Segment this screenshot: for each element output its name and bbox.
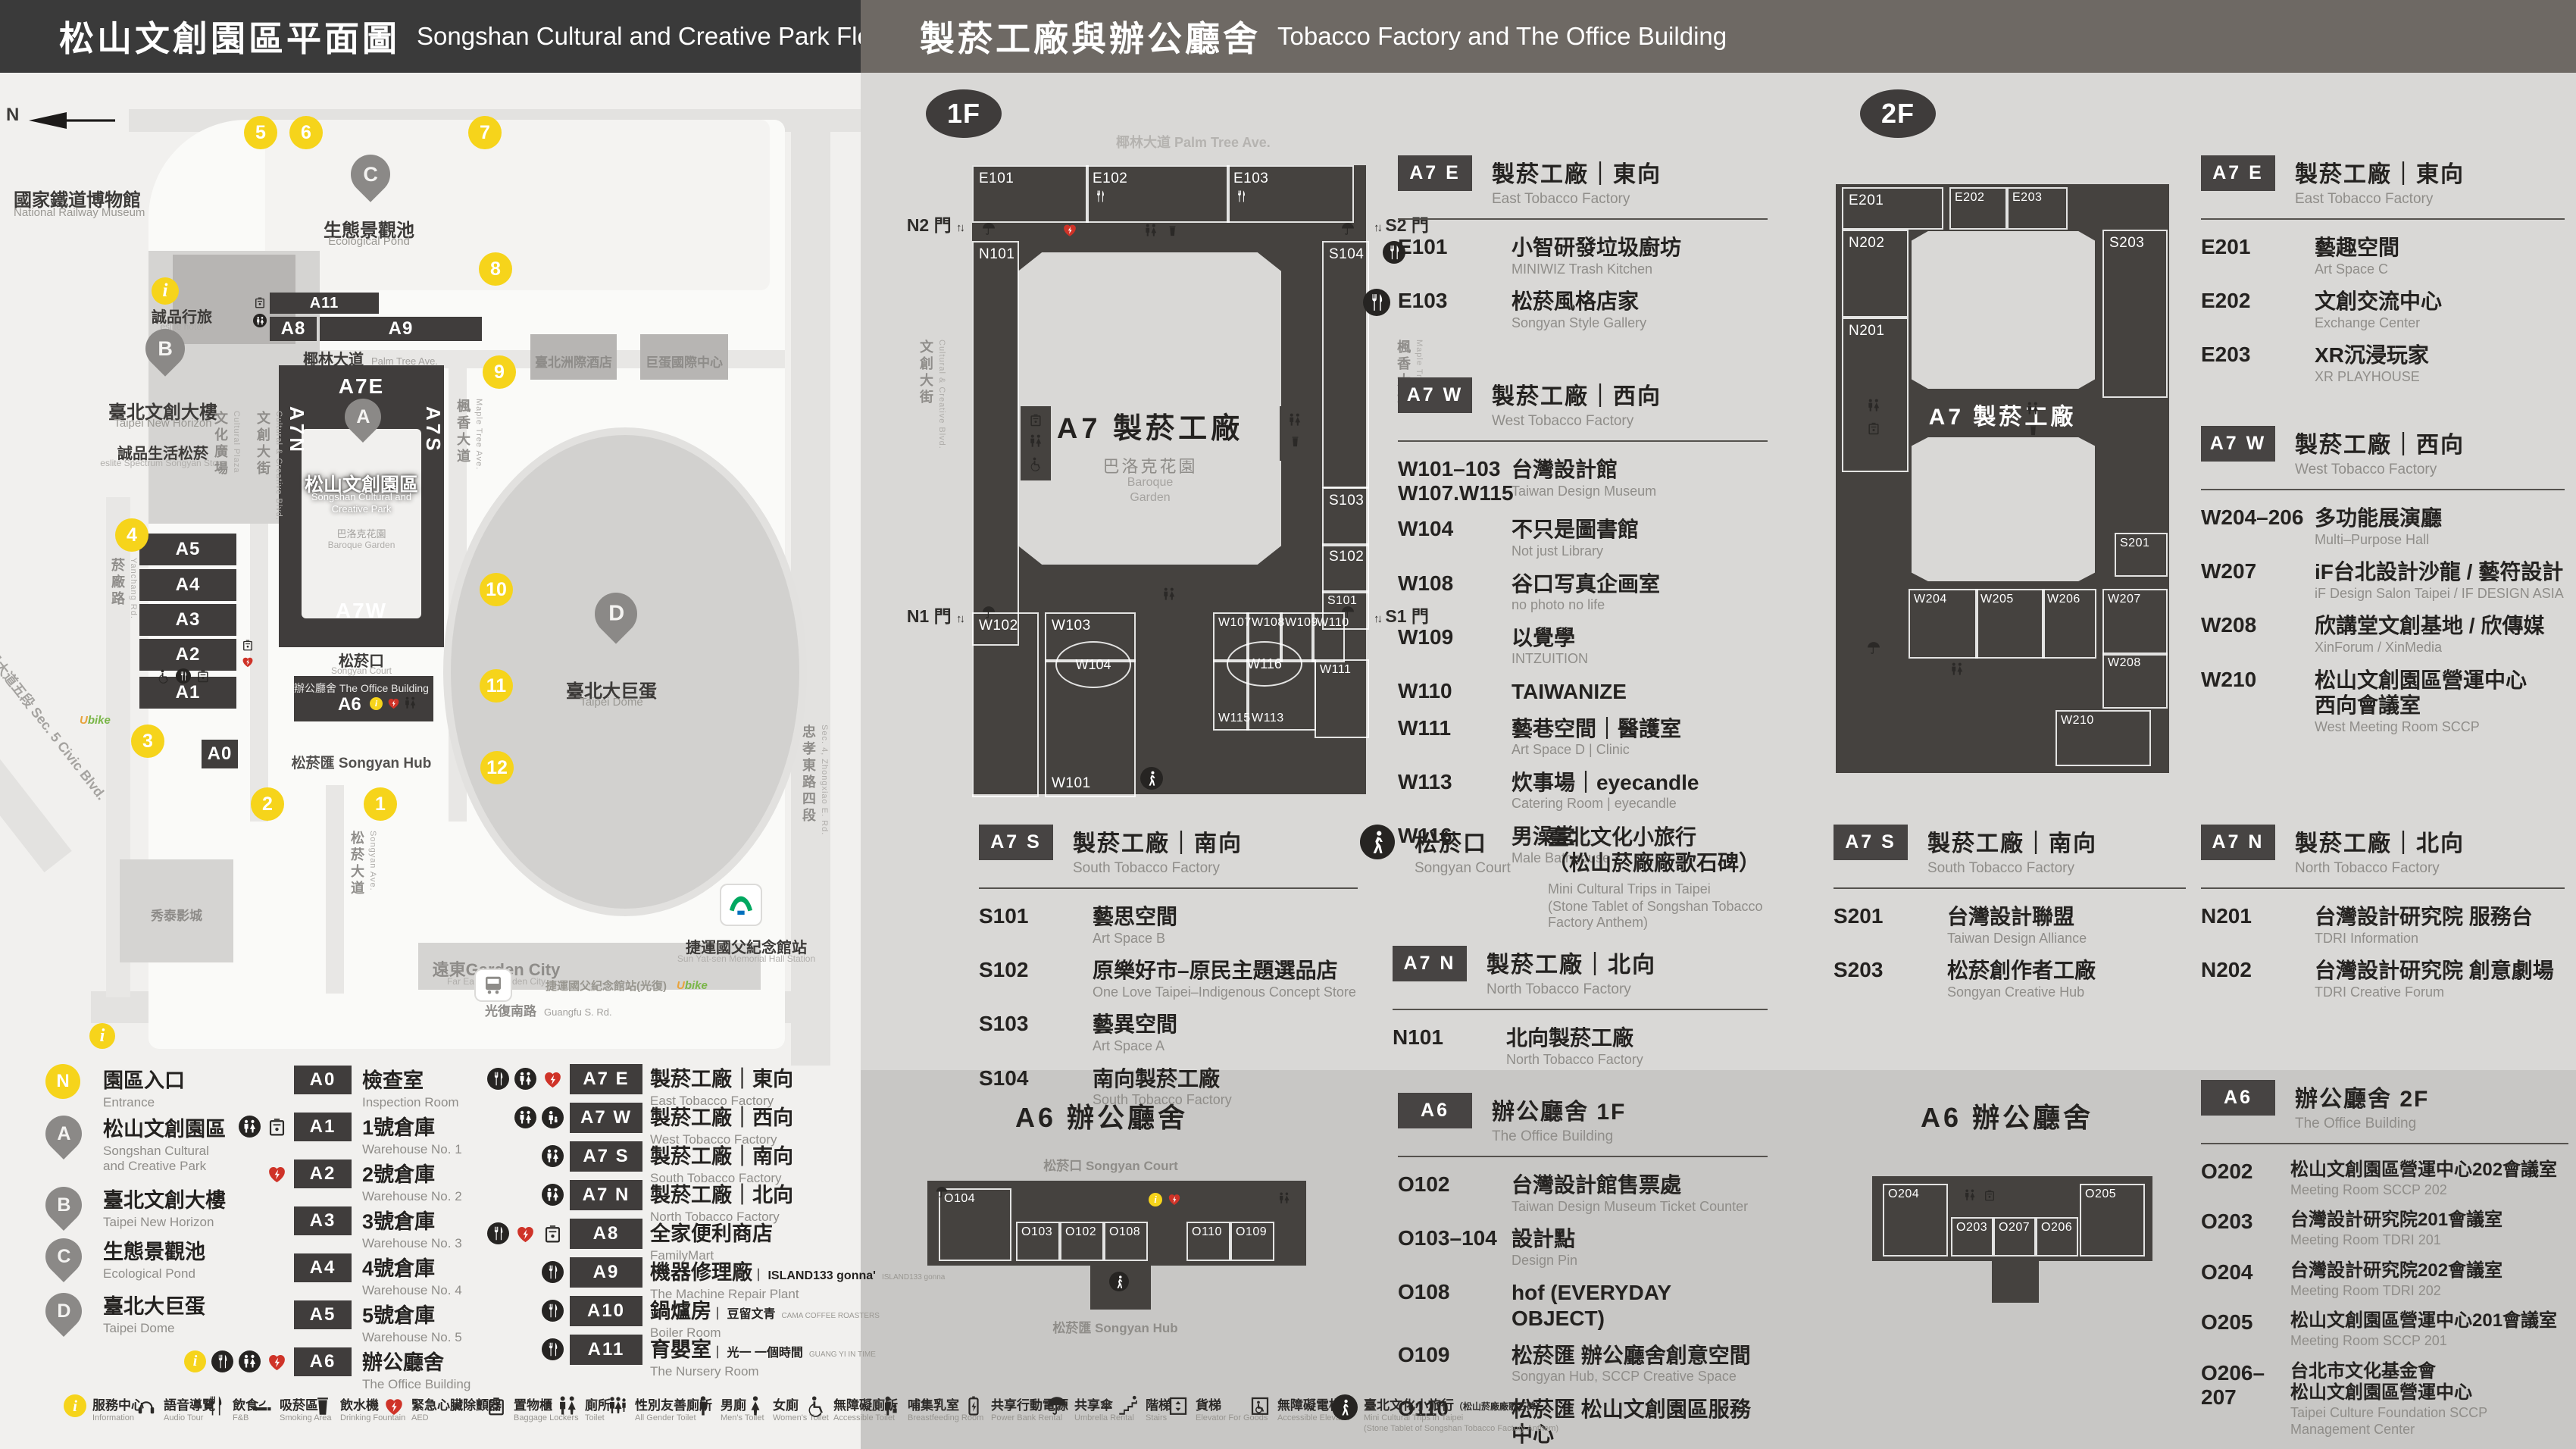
room-label: E101	[979, 171, 1014, 187]
gate-label: N1 門 ↑↓	[893, 602, 963, 627]
section-title-en: The Office Building	[2295, 1116, 2429, 1132]
room-w102: W102	[972, 612, 1039, 797]
pair-icon	[1277, 1191, 1291, 1205]
map-marker-8: 8	[479, 252, 512, 286]
legend-pin-icon: A	[38, 1108, 89, 1160]
section-badge: A6	[2201, 1080, 2275, 1116]
map-label: A6	[338, 694, 361, 715]
gate-text: N1 門	[907, 606, 956, 626]
legend-badge: A11	[570, 1335, 642, 1365]
entry-code: E203	[2201, 343, 2315, 385]
directory-entry-o102: O102台灣設計館售票處Taiwan Design Museum Ticket …	[1398, 1172, 1768, 1215]
map-street-vertical: 菸廠路Yanchang Rd.	[108, 558, 138, 619]
map-street-label: 椰林大道Palm Tree Ave.	[303, 347, 438, 369]
directory-entry-n201: N201台灣設計研究院 服務台TDRI Information	[2201, 904, 2565, 947]
legend-building-text: 4號倉庫Warehouse No. 4	[362, 1252, 462, 1298]
entry-code: O202	[2201, 1160, 2290, 1198]
room-n101: N101	[972, 241, 1019, 646]
entry-text: 松山文創園區營運中心202會議室Meeting Room SCCP 202	[2290, 1160, 2557, 1198]
locker-icon	[1983, 1188, 1996, 1202]
entry-code: O109	[1398, 1343, 1512, 1385]
entry-code: N101	[1393, 1025, 1506, 1068]
directory-section-a7e-0: A7 E製菸工廠｜東向East Tobacco FactoryE101小智研發垃…	[1398, 155, 1768, 343]
pair-icon	[514, 1068, 536, 1090]
entry-zh: 台灣設計研究院202會議室	[2290, 1260, 2503, 1282]
entry-zh: iF台北設計沙龍 / 藝符設計	[2315, 559, 2564, 585]
locker-icon	[1866, 421, 1881, 436]
court-title-en: Songyan Court	[1415, 860, 1528, 877]
room-e201: E201	[1842, 187, 1943, 230]
section-title-zh: 辦公廳舍 1F	[1492, 1093, 1626, 1126]
map-label: 捷運國父紀念館站(光復)	[546, 978, 667, 994]
entry-code: W109	[1398, 625, 1512, 668]
entry-text: 以覺學INTZUITION	[1512, 625, 1588, 668]
legend-building-text: 1號倉庫Warehouse No. 1	[362, 1111, 462, 1157]
directory-entry-w113: W113炊事場｜eyecandleCatering Room | eyecand…	[1398, 770, 1768, 812]
legend-pin-text: 臺北文創大樓Taipei New Horizon	[103, 1184, 226, 1230]
right-header: 製菸工廠與辦公廳舍 Tobacco Factory and The Office…	[861, 0, 2576, 73]
entry-zh: 台灣設計館售票處	[1512, 1172, 1748, 1198]
plan-street-label: 椰林大道 Palm Tree Ave.	[1116, 132, 1271, 152]
map-label: A7W	[336, 599, 387, 623]
room-s201: S201	[2115, 533, 2168, 577]
entry-text: 台灣設計研究院 服務台TDRI Information	[2315, 904, 2533, 947]
room-o204: O204	[1883, 1184, 1948, 1257]
plan-pa62f: A6 辦公廳舍O204O205O203O207O206	[1872, 1091, 2152, 1319]
legend-badge: A7 W	[570, 1103, 642, 1133]
directory-section-court-3: 松菸口Songyan Court臺北文化小旅行（松山菸廠廠歌石碑）Mini Cu…	[1360, 825, 1773, 931]
section-divider	[2201, 218, 2565, 220]
street-en: Cultural & Creative Blvd.	[937, 340, 946, 449]
directory-section-a7e-6: A7 E製菸工廠｜東向East Tobacco FactoryE201藝趣空間A…	[2201, 155, 2565, 397]
entry-zh: 北向製菸工廠	[1506, 1025, 1643, 1051]
ubike-logo: Ubike	[677, 979, 708, 992]
entry-text: TAIWANIZE	[1512, 679, 1627, 705]
pair-icon	[239, 1350, 261, 1372]
entry-zh: 藝趣空間	[2315, 235, 2399, 261]
room-o206: O206	[2036, 1217, 2078, 1257]
entry-zh: TAIWANIZE	[1512, 679, 1627, 705]
entry-zh: 台灣設計研究院 創意劇場	[2315, 958, 2554, 984]
section-title-en: South Tobacco Factory	[1073, 860, 1243, 877]
section-title-zh: 製菸工廠｜西向	[2295, 426, 2465, 459]
directory-entry-e202: E202文創交流中心Exchange Center	[2201, 289, 2565, 331]
section-divider	[1398, 440, 1768, 442]
room-e102: E102	[1086, 165, 1230, 223]
section-title: 製菸工廠｜北向North Tobacco Factory	[1487, 946, 1656, 998]
section-title: 製菸工廠｜西向West Tobacco Factory	[1492, 377, 1662, 430]
room-label: O103	[1021, 1225, 1052, 1239]
locker-icon	[195, 668, 211, 684]
entry-zh: 臺北文化小旅行	[1548, 825, 1773, 850]
legend-zh: 生態景觀池	[103, 1235, 205, 1265]
acclift-icon	[1249, 1394, 1271, 1417]
map-label: 辦公廳舍 The Office Building	[294, 681, 429, 696]
legend-zh: 1號倉庫	[362, 1111, 462, 1141]
legend-pin-icon: D	[38, 1285, 89, 1337]
entry-en: no photo no life	[1512, 597, 1660, 614]
room-label: O207	[1999, 1221, 2030, 1235]
gate-label: N2 門 ↑↓	[893, 211, 963, 236]
section-title-en: South Tobacco Factory	[1927, 860, 2097, 877]
entry-text: 松山文創園區營運中心西向會議室West Meeting Room SCCP	[2315, 668, 2527, 736]
map-building-a2: A2	[139, 639, 236, 671]
entry-zh: 松菸創作者工廠	[1947, 958, 2096, 984]
water-icon	[2027, 424, 2040, 437]
pin-letter: A	[356, 406, 370, 428]
room-w208: W208	[2102, 653, 2168, 709]
street-zh: 文創大街	[916, 340, 936, 449]
entry-en: MINIWIZ Trash Kitchen	[1512, 261, 1681, 278]
section-header: A7 N製菸工廠｜北向North Tobacco Factory	[2201, 825, 2565, 877]
fnb-icon	[487, 1068, 509, 1090]
legend-zh: 臺北文創大樓	[103, 1184, 226, 1213]
legend-row-icons	[482, 1068, 564, 1090]
directory-entry-e201: E201藝趣空間Art Space C	[2201, 235, 2565, 277]
entry-en: Exchange Center	[2315, 315, 2442, 332]
entry-en: iF Design Salon Taipei / IF DESIGN ASIA	[2315, 586, 2564, 602]
walk-icon	[1109, 1272, 1129, 1291]
legend-zh: 松山文創園區	[103, 1113, 226, 1142]
section-title-en: North Tobacco Factory	[2295, 860, 2465, 877]
umbrella-icon	[1866, 640, 1881, 656]
plan-label: 松菸匯 Songyan Hub	[1052, 1317, 1177, 1336]
legend-zh: 臺北大巨蛋	[103, 1290, 205, 1319]
locker-icon	[1028, 412, 1043, 427]
section-header: A7 E製菸工廠｜東向East Tobacco Factory	[1398, 155, 1768, 208]
entry-zh: 欣講堂文創基地 / 欣傳媒	[2315, 613, 2544, 639]
entry-code: W210	[2201, 668, 2315, 736]
room-e202: E202	[1949, 187, 2007, 230]
room-w210: W210	[2055, 710, 2151, 766]
room-w207: W207	[2102, 589, 2168, 656]
facility-en2: (Stone Tablet of Songshan Tobacco Factor…	[1364, 1424, 1558, 1435]
directory-entry-s103: S103藝異空間Art Space A	[979, 1012, 1358, 1054]
wheelchair-icon	[805, 1394, 827, 1417]
entry-en: Not just Library	[1512, 543, 1639, 560]
legend-zh: 3號倉庫	[362, 1205, 462, 1235]
entry-code: E201	[2201, 235, 2315, 277]
mrt-logo-icon	[721, 885, 761, 925]
map-building-a11: A11	[270, 293, 379, 314]
entry-en: South Tobacco Factory	[1093, 1092, 1232, 1109]
map-label: 秀泰影城	[151, 905, 202, 924]
pair-icon	[514, 1106, 536, 1128]
directory-section-a7s-2: A7 S製菸工廠｜南向South Tobacco FactoryS101藝思空間…	[979, 825, 1358, 1120]
room-o109: O109	[1230, 1222, 1274, 1261]
entry-text: 原樂好市–原民主題選品店One Love Taipei–Indigenous C…	[1093, 958, 1356, 1000]
map-building-a5: A5	[139, 534, 236, 565]
legend-brand-sub: GUANG YI IN TIME	[809, 1350, 876, 1359]
entry-en: Songyan Style Gallery	[1512, 315, 1646, 332]
aed-icon	[383, 1394, 405, 1417]
aed-icon	[1061, 221, 1078, 238]
umbrella-icon	[981, 221, 996, 236]
room-label: O206	[2041, 1221, 2072, 1235]
entry-text: 台灣設計研究院201會議室Meeting Room TDRI 201	[2290, 1210, 2503, 1248]
section-title-zh: 製菸工廠｜北向	[1487, 946, 1656, 979]
legend-row-icons	[536, 1145, 564, 1167]
map-street-vertical: 文創大街Cultural & Creative Blvd.	[253, 411, 283, 521]
plan-courtyard	[1912, 231, 2095, 389]
entry-zh2: （松山菸廠廠歌石碑）	[1548, 850, 1773, 876]
directory-section-a7n-9: A7 N製菸工廠｜北向North Tobacco FactoryN201台灣設計…	[2201, 825, 2565, 1012]
map-label: 松菸匯 Songyan Hub	[292, 752, 432, 772]
directory-entry-w204-206: W204–206多功能展演廳Multi–Purpose Hall	[2201, 505, 2565, 548]
directory-entry-s203: S203松菸創作者工廠Songyan Creative Hub	[1834, 958, 2186, 1000]
legend-pin-text: 生態景觀池Ecological Pond	[103, 1235, 205, 1282]
street-en: Yanchang Rd.	[129, 558, 138, 619]
legend-zh: 2號倉庫	[362, 1158, 462, 1188]
plan-label: Garden	[1130, 491, 1170, 505]
map-label: 臺北洲際酒店	[535, 352, 612, 371]
fnb-icon	[204, 1394, 227, 1417]
map-marker-4: 4	[115, 518, 148, 552]
map-marker-3: 3	[131, 724, 164, 758]
entry-code: E202	[2201, 289, 2315, 331]
map-label: A7E	[339, 374, 384, 399]
legend-badge: A7 N	[570, 1180, 642, 1210]
audio-icon	[135, 1394, 158, 1417]
directory-entry-o103-104: O103–104設計點Design Pin	[1398, 1226, 1768, 1269]
entry-code: S102	[979, 958, 1093, 1000]
plan-p2f: E201E202E203N202N201S203A7 製菸工廠S201W204W…	[1836, 171, 2169, 777]
room-o207: O207	[1993, 1217, 2036, 1257]
legend-row-icons	[536, 1300, 564, 1322]
info-icon: i	[184, 1350, 206, 1372]
section-title: 製菸工廠｜東向East Tobacco Factory	[1492, 155, 1662, 208]
entry-zh: 藝巷空間｜醫護室	[1512, 716, 1681, 742]
fnb-icon	[542, 1338, 564, 1360]
map-marker-2: 2	[251, 787, 284, 821]
gate-arrows-icon: ↑↓	[1374, 221, 1380, 234]
directory-entry-e103: E103松菸風格店家Songyan Style Gallery	[1398, 289, 1768, 331]
street-en: Palm Tree Ave.	[371, 355, 438, 367]
map-label: Taipei New Horizon	[114, 417, 211, 430]
section-title: 辦公廳舍 1FThe Office Building	[1492, 1093, 1626, 1145]
section-badge: A7 E	[2201, 155, 2275, 191]
entry-en: Art Space D | Clinic	[1512, 742, 1681, 759]
room-label: E103	[1233, 171, 1268, 187]
entry-en: West Meeting Room SCCP	[2315, 719, 2527, 736]
section-header: A6辦公廳舍 2FThe Office Building	[2201, 1080, 2568, 1132]
room-o205: O205	[2080, 1184, 2145, 1257]
legend-row-icons	[261, 1163, 288, 1185]
street-zh: 菸廠路	[108, 558, 127, 619]
bus-stop-icon	[476, 970, 511, 1000]
entry-text: 藝趣空間Art Space C	[2315, 235, 2399, 277]
info-icon: i	[64, 1394, 86, 1417]
pair-icon	[1161, 587, 1177, 602]
entry-text: 文創交流中心Exchange Center	[2315, 289, 2442, 331]
entry-code2: W107.W115	[1398, 481, 1512, 505]
entry-code: S103	[979, 1012, 1093, 1054]
water-icon	[1289, 435, 1302, 448]
pin-letter: D	[608, 602, 624, 627]
facility-stairs: 階梯Stairs	[1117, 1394, 1171, 1424]
directory-entry-o108: O108hof (EVERYDAY OBJECT)	[1398, 1280, 1768, 1331]
section-header: A6辦公廳舍 1FThe Office Building	[1398, 1093, 1768, 1145]
map-roadl	[326, 785, 344, 994]
room-label: E102	[1093, 171, 1127, 187]
entry-text: 設計點Design Pin	[1512, 1226, 1577, 1269]
entry-code: W101–103W107.W115	[1398, 457, 1512, 505]
pin-letter: C	[363, 163, 378, 186]
entry-text: 台灣設計聯盟Taiwan Design Alliance	[1947, 904, 2087, 947]
left-title-zh: 松山文創園區平面圖	[59, 11, 400, 61]
entry-text: 藝異空間Art Space A	[1093, 1012, 1177, 1054]
walk-icon	[1332, 1394, 1358, 1420]
map-road	[791, 109, 830, 1066]
room-o103: O103	[1016, 1222, 1060, 1261]
aed-icon	[266, 1163, 288, 1185]
directory-entry-n101: N101北向製菸工廠North Tobacco Factory	[1393, 1025, 1768, 1068]
entry-zh: 原樂好市–原民主題選品店	[1093, 958, 1356, 984]
entry-en: Design Pin	[1512, 1253, 1577, 1269]
street-zh: 文創大街	[253, 411, 273, 521]
legend-zh: 5號倉庫	[362, 1299, 462, 1329]
entry-zh: 小智研發垃圾廚坊	[1512, 235, 1681, 261]
section-title-zh: 製菸工廠｜東向	[2295, 155, 2465, 189]
room-o102: O102	[1060, 1222, 1104, 1261]
legend-row-icons	[536, 1261, 564, 1283]
room-label: S203	[2109, 235, 2144, 252]
legend-zh: 機器修理廠｜ ISLAND133 gonna'ISLAND133 gonna	[650, 1256, 945, 1285]
map-street-vertical: 松菸大道Songyan Ave.	[347, 831, 377, 897]
map-marker-1: 1	[364, 787, 397, 821]
room-label: S104	[1329, 246, 1364, 263]
left-header: 松山文創園區平面圖 Songshan Cultural and Creative…	[0, 0, 861, 73]
entry-text: 小智研發垃圾廚坊MINIWIZ Trash Kitchen	[1512, 235, 1681, 277]
map-label: Ecological Pond	[328, 235, 410, 248]
legend-zh: 檢查室	[362, 1064, 459, 1094]
section-title-en: West Tobacco Factory	[2295, 462, 2465, 478]
room-label: O104	[944, 1192, 975, 1206]
directory-section-a7w-7: A7 W製菸工廠｜西向West Tobacco FactoryW204–206多…	[2201, 426, 2565, 746]
entry-zh: 台灣設計研究院201會議室	[2290, 1210, 2503, 1231]
entry-code: S104	[979, 1066, 1093, 1109]
entry-en: Taiwan Design Museum Ticket Counter	[1512, 1199, 1748, 1216]
section-title: 製菸工廠｜北向North Tobacco Factory	[2295, 825, 2465, 877]
entry-en: One Love Taipei–Indigenous Concept Store	[1093, 984, 1356, 1001]
umbrella-icon	[1340, 221, 1355, 236]
plan-label: A6 辦公廳舍	[1921, 1096, 2093, 1135]
section-divider	[1834, 887, 2186, 889]
legend-zh: 4號倉庫	[362, 1252, 462, 1282]
section-title-zh: 製菸工廠｜北向	[2295, 825, 2465, 858]
map-label: Baroque Garden	[328, 540, 395, 550]
facility-text: 臺北文化小旅行（松山菸廠廠歌石碑）Mini Cultural Trips in …	[1364, 1394, 1558, 1435]
room-label: W207	[2108, 593, 2141, 606]
legend-zh: 園區入口	[103, 1064, 185, 1094]
legend-badge: A10	[570, 1296, 642, 1326]
entry-zh: 松山文創園區營運中心201會議室	[2290, 1310, 2557, 1332]
entry-en: Art Space C	[2315, 261, 2399, 278]
entry-code: E103	[1398, 289, 1512, 331]
entry-code: W207	[2201, 559, 2315, 602]
aed-icon	[542, 1068, 564, 1090]
plan-mass	[1992, 1261, 2039, 1303]
room-w206: W206	[2042, 589, 2096, 659]
room-w204: W204	[1909, 589, 1978, 659]
directory-entry-o109: O109松菸匯 辦公廳舍創意空間Songyan Hub, SCCP Creati…	[1398, 1343, 1768, 1385]
facility-en: Mini Cultural Trips in Taipei	[1364, 1413, 1558, 1424]
pin-letter: B	[57, 1194, 70, 1216]
entry-en: XR PLAYHOUSE	[2315, 369, 2429, 386]
map-marker-12: 12	[480, 751, 514, 784]
section-badge: A7 S	[1834, 825, 1908, 860]
right-title-zh: 製菸工廠與辦公廳舍	[920, 11, 1261, 61]
section-title: 製菸工廠｜西向West Tobacco Factory	[2295, 426, 2465, 478]
songyan-court-icon	[1360, 825, 1395, 859]
legend-zh: 製菸工廠｜東向	[650, 1062, 793, 1092]
plan-street-vertical: 文創大街Cultural & Creative Blvd.	[916, 340, 946, 449]
entry-zh: 台灣設計研究院 服務台	[2315, 904, 2533, 930]
section-title-zh: 製菸工廠｜南向	[1927, 825, 2097, 858]
legend-zh: 辦公廳舍	[362, 1346, 470, 1375]
room-s103: S103	[1322, 487, 1369, 546]
entry-text: 台灣設計館售票處Taiwan Design Museum Ticket Coun…	[1512, 1172, 1748, 1215]
section-title-en: North Tobacco Factory	[1487, 981, 1656, 998]
entry-en: Songyan Creative Hub	[1947, 984, 2096, 1001]
facility-zh: 臺北文化小旅行（松山菸廠廠歌石碑）	[1364, 1394, 1558, 1413]
court-entry: 臺北文化小旅行（松山菸廠廠歌石碑）Mini Cultural Trips in …	[1548, 825, 1773, 931]
aed-icon	[386, 696, 401, 710]
section-header: A7 N製菸工廠｜北向North Tobacco Factory	[1393, 946, 1768, 998]
legend-pin-text: 園區入口Entrance	[103, 1064, 185, 1110]
room-o104: O104	[939, 1188, 1011, 1261]
room-s102: S102	[1322, 543, 1369, 593]
room-label: N201	[1849, 323, 1884, 340]
entry-en: Art Space A	[1093, 1038, 1177, 1055]
room-label: O109	[1236, 1225, 1267, 1239]
room-label: O108	[1109, 1225, 1140, 1239]
entry-zh: 台灣設計館	[1512, 457, 1656, 483]
wheelchair-icon	[156, 668, 171, 684]
entry-en: Songyan Hub, SCCP Creative Space	[1512, 1369, 1751, 1385]
legend-en: Warehouse No. 1	[362, 1142, 462, 1157]
aed-icon	[266, 1350, 288, 1372]
directory-entry-s101: S101藝思空間Art Space B	[979, 904, 1358, 947]
legend-en: Warehouse No. 3	[362, 1236, 462, 1251]
fnb-icon	[1093, 189, 1107, 203]
section-divider	[2201, 887, 2565, 889]
entry-text: 台灣設計研究院 創意劇場TDRI Creative Forum	[2315, 958, 2554, 1000]
map-label: N	[6, 105, 19, 126]
entry-zh2: 西向會議室	[2315, 693, 2527, 718]
entry-zh: 松菸風格店家	[1512, 289, 1646, 315]
entry-text: iF台北設計沙龍 / 藝符設計iF Design Salon Taipei / …	[2315, 559, 2564, 602]
plan-label: A7 製菸工廠	[1057, 405, 1243, 446]
legend-badge: A8	[570, 1219, 642, 1249]
legend-en: Taipei Dome	[103, 1321, 205, 1336]
goodslift-icon	[1167, 1394, 1190, 1417]
map-label: Creative Park	[332, 503, 392, 515]
fnb-icon	[1234, 189, 1248, 203]
entry-en: XinForum / XinMedia	[2315, 640, 2544, 656]
entry-code: N202	[2201, 958, 2315, 1000]
entry-code: W204–206	[2201, 505, 2315, 548]
pin-letter: A	[57, 1123, 70, 1145]
entry-code: E101	[1398, 235, 1512, 277]
legend-pin-text: 臺北大巨蛋Taipei Dome	[103, 1290, 205, 1336]
legend-zh: 製菸工廠｜南向	[650, 1140, 793, 1169]
section-header: A7 W製菸工廠｜西向West Tobacco Factory	[1398, 377, 1768, 430]
map-street-vertical: 楓香大道Maple Tree Ave.	[453, 399, 483, 470]
entry-zh: 設計點	[1512, 1226, 1577, 1252]
walk-icon	[1140, 767, 1163, 790]
legend-badge: A1	[294, 1113, 352, 1141]
